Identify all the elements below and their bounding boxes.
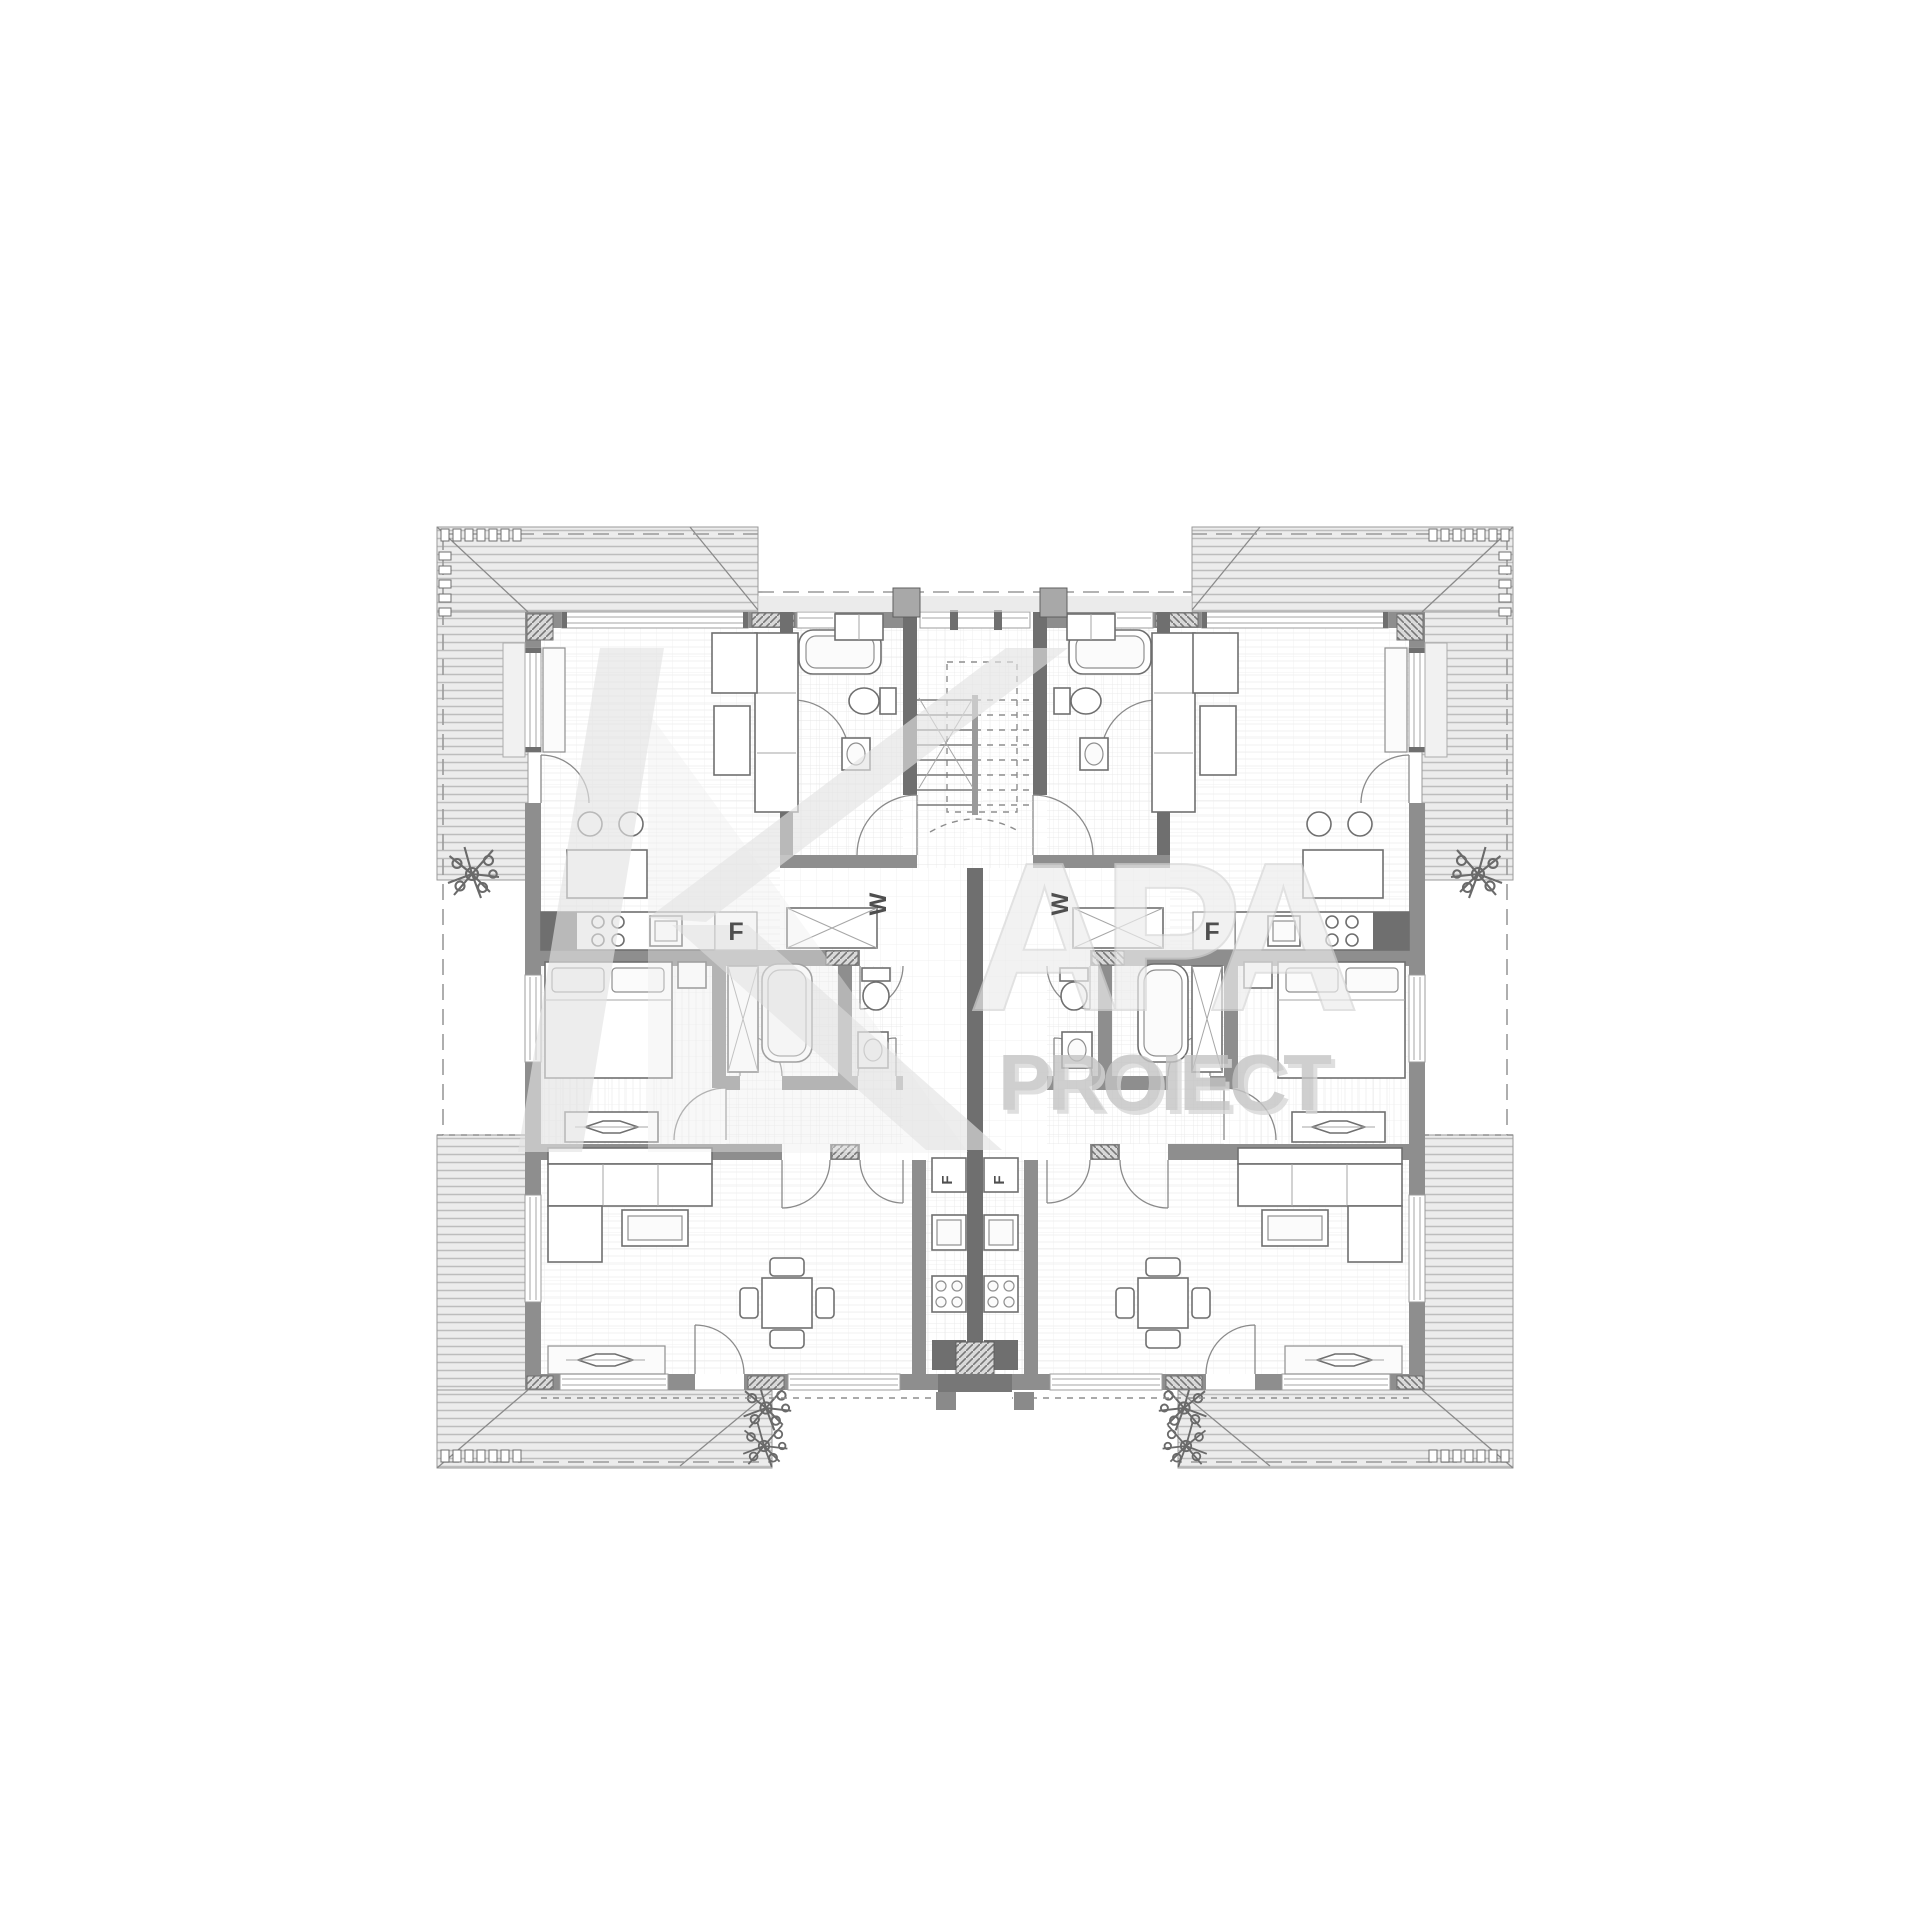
fridge-label-right: F [1204, 918, 1219, 946]
floor-plan-page: APA PROIECT PROIECT W W F F F F [0, 0, 1920, 1920]
chimney-icon [893, 588, 920, 617]
appliance-label-right: F [991, 1175, 1008, 1184]
wardrobe-label-right: W [1047, 892, 1074, 915]
watermark-ghost-letters: APA [968, 818, 1360, 1055]
floor-plan-canvas: APA PROIECT PROIECT W W F F F F [0, 0, 1920, 1920]
wardrobe-label-left: W [865, 892, 892, 915]
watermark-word: PROIECT [998, 1038, 1336, 1127]
fridge-label-left: F [728, 918, 743, 946]
chimney-icon [1040, 588, 1067, 617]
appliance-label-left: F [939, 1175, 956, 1184]
